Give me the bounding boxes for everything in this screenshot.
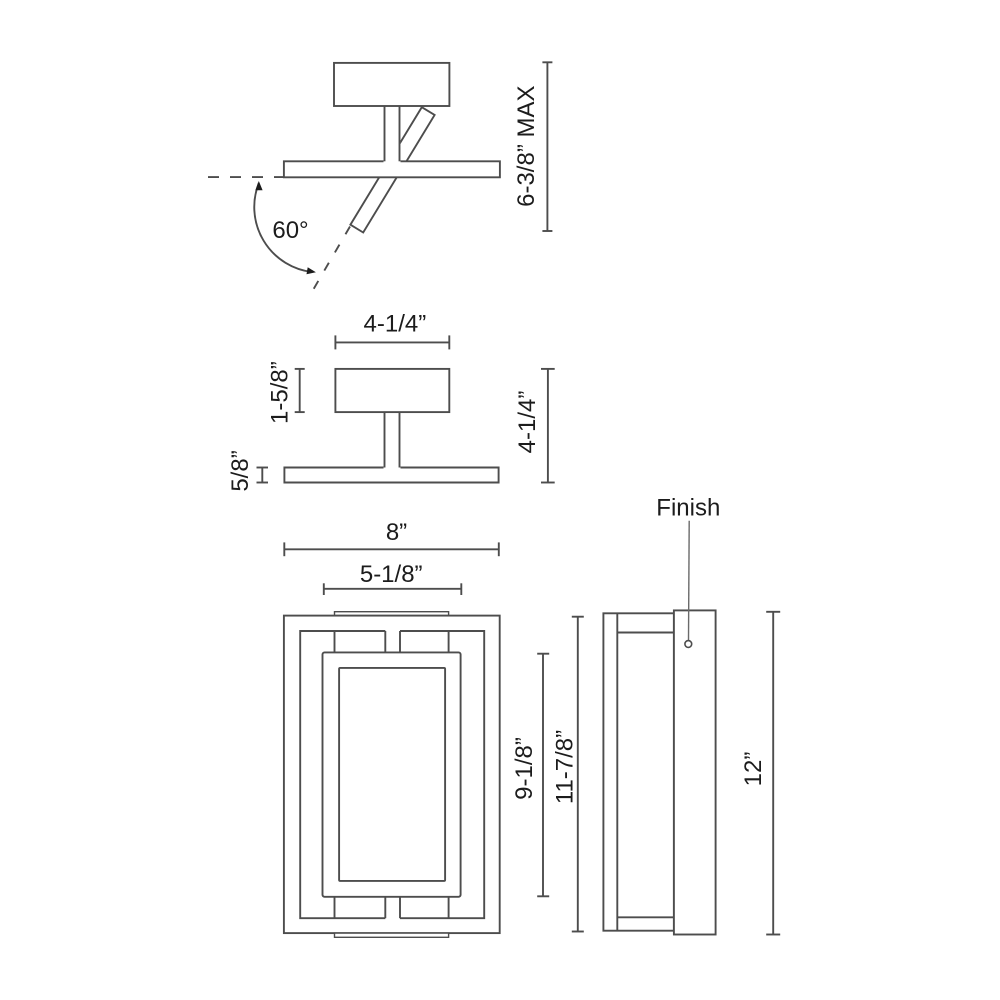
svg-text:5-1/8”: 5-1/8”	[360, 561, 423, 588]
svg-text:6-3/8” MAX: 6-3/8” MAX	[513, 86, 540, 207]
svg-text:Finish: Finish	[656, 495, 720, 522]
svg-text:8”: 8”	[386, 519, 407, 546]
svg-text:4-1/4”: 4-1/4”	[514, 391, 541, 454]
svg-text:12”: 12”	[740, 752, 767, 787]
svg-text:11-7/8”: 11-7/8”	[552, 730, 579, 804]
svg-text:60°: 60°	[272, 217, 308, 244]
svg-text:1-5/8”: 1-5/8”	[267, 361, 294, 424]
svg-text:5/8”: 5/8”	[227, 450, 254, 491]
svg-text:9-1/8”: 9-1/8”	[511, 737, 538, 800]
svg-text:4-1/4”: 4-1/4”	[364, 311, 427, 338]
